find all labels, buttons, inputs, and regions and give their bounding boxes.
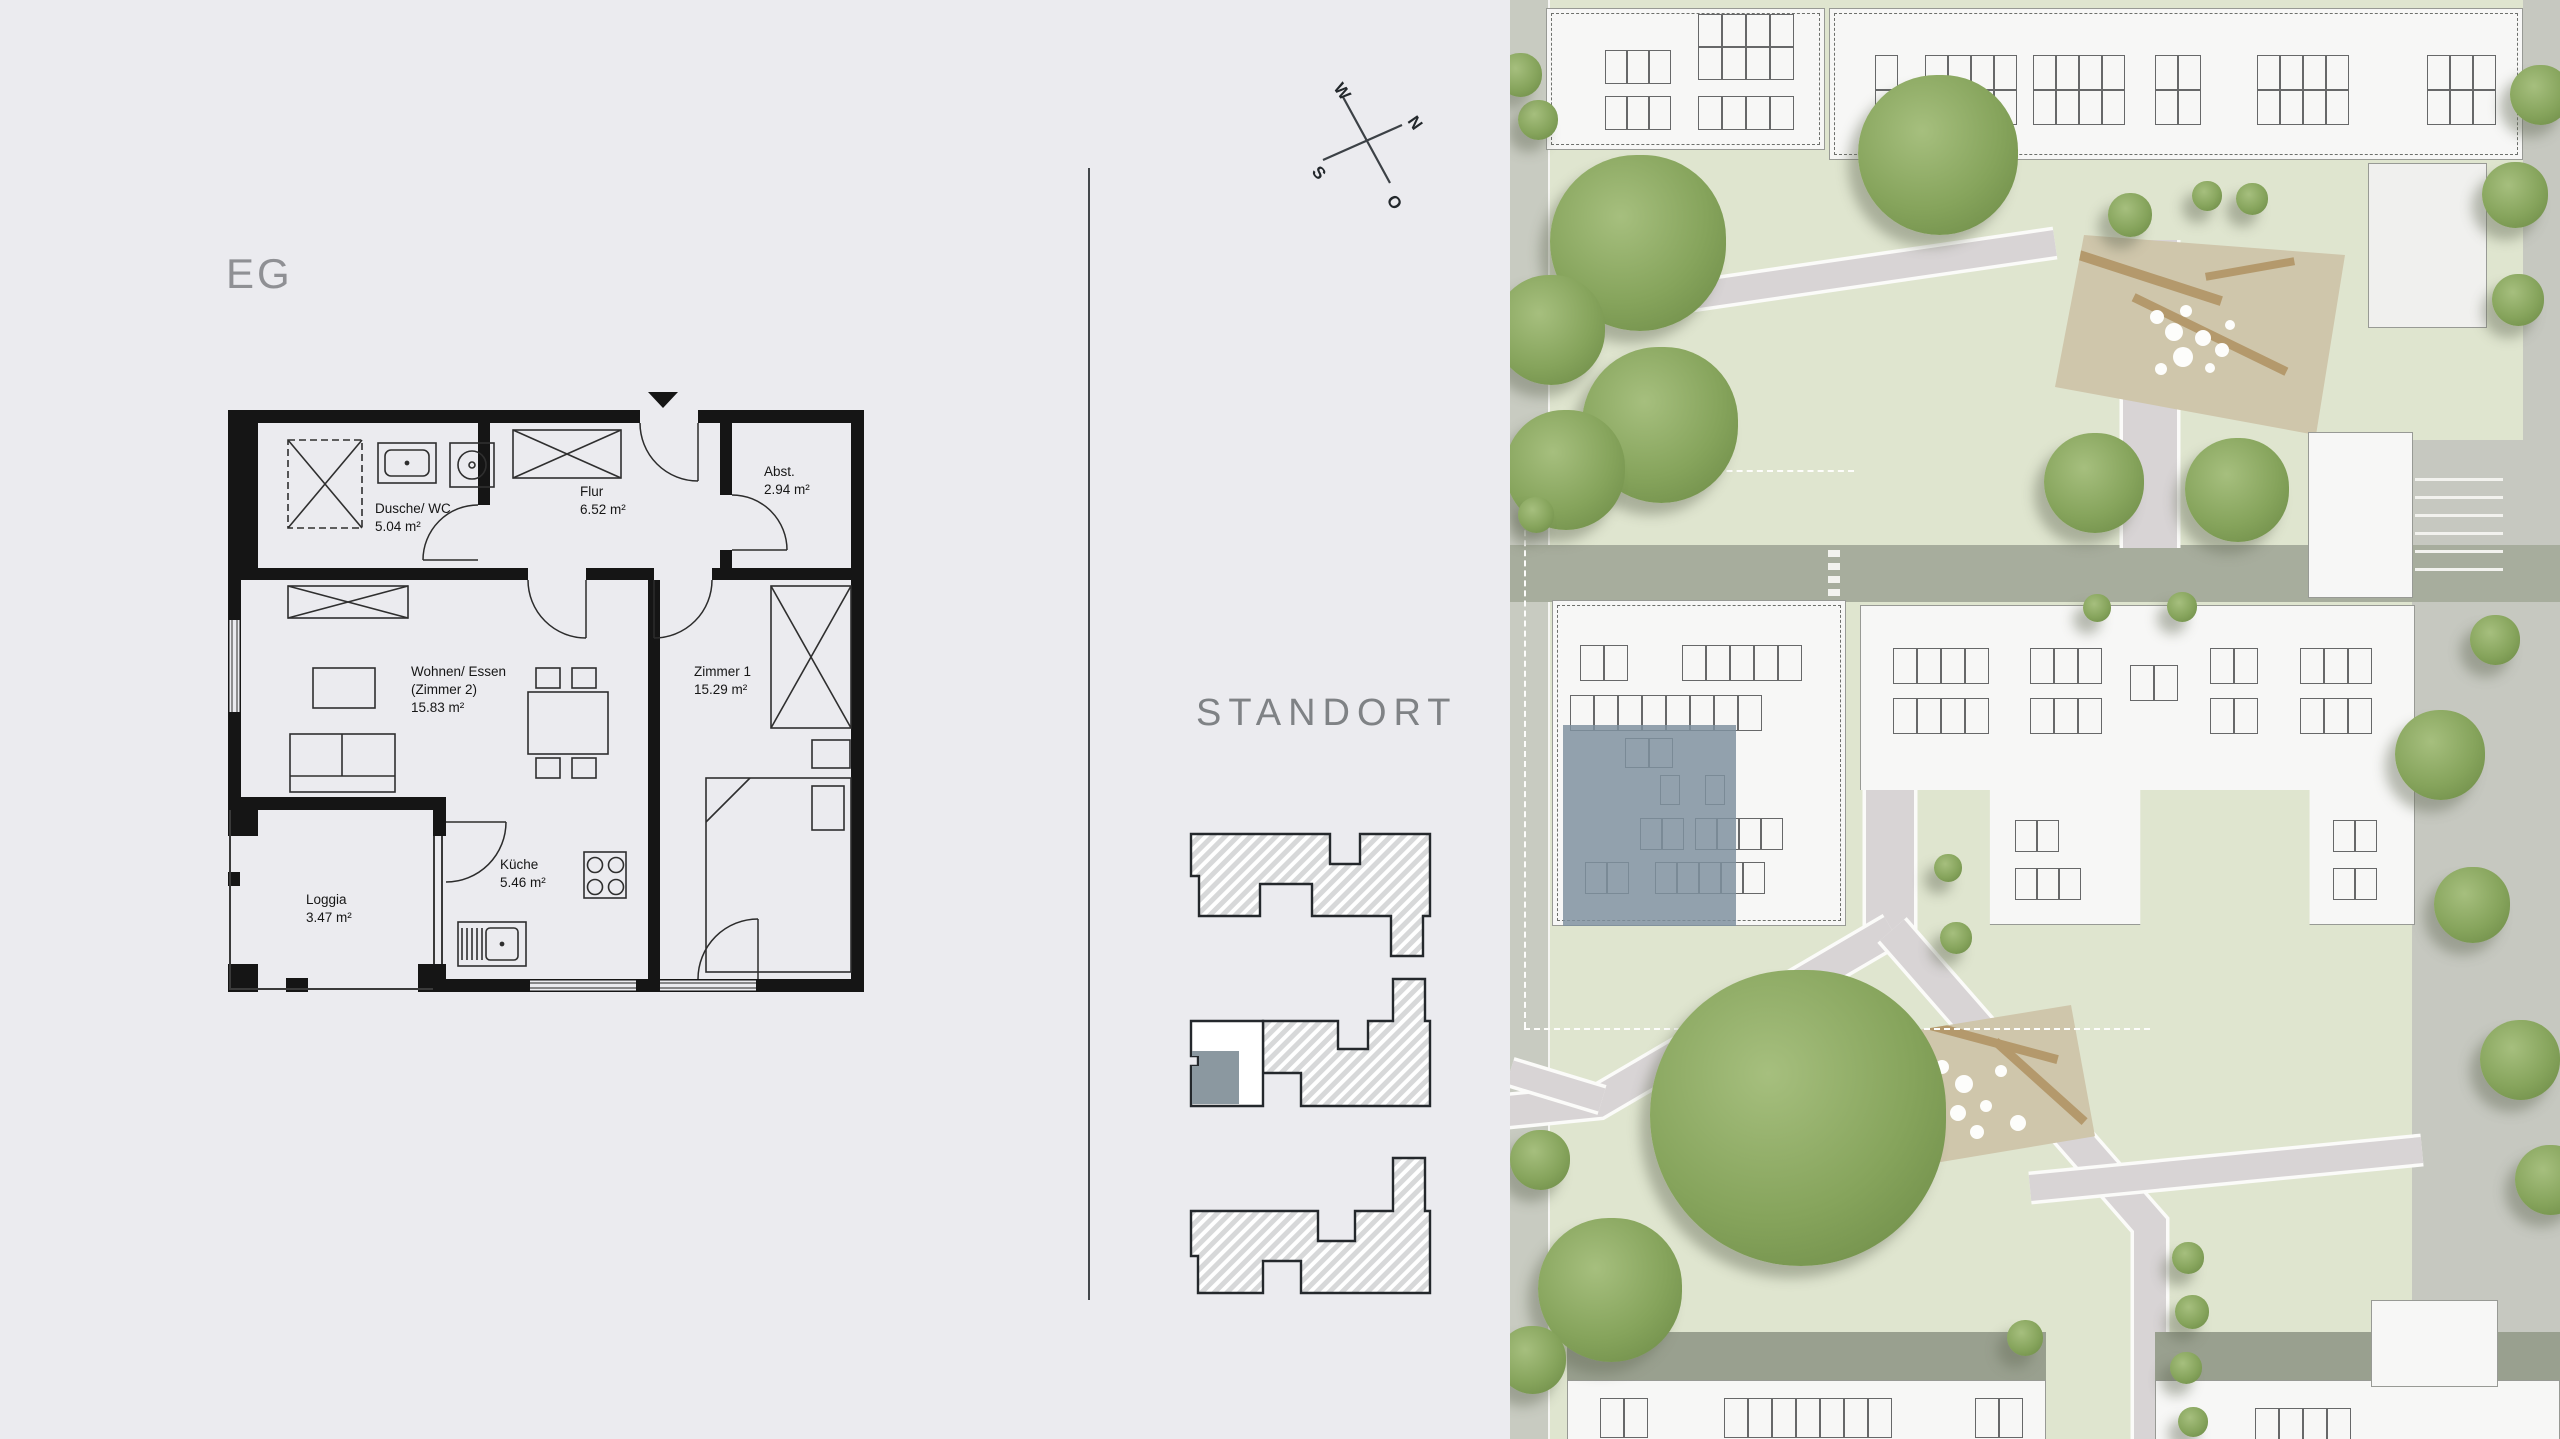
rooflight-cell: [1604, 645, 1628, 681]
rooflight-cell: [2257, 90, 2280, 125]
rooflight-cell: [2079, 90, 2102, 125]
play-beam: [2205, 257, 2295, 281]
rooflight-cell: [1994, 55, 2017, 90]
sofa-icon: [290, 734, 395, 792]
tree: [2044, 433, 2144, 533]
boundary-dashed-line: [1524, 470, 1526, 1028]
rooflight-cell: [2015, 868, 2037, 900]
tree: [2172, 1242, 2204, 1274]
building-shadow: [2155, 1332, 2560, 1380]
pebble: [2010, 1115, 2026, 1131]
wardrobe-icon: [513, 430, 621, 478]
pebble: [2195, 330, 2211, 346]
rooflight-cell: [1580, 645, 1604, 681]
tree: [1518, 497, 1554, 533]
rooflight-cell: [1875, 55, 1898, 90]
rooflight-cell: [2037, 868, 2059, 900]
tree: [2395, 710, 2485, 800]
compass-south-label: S: [1308, 162, 1330, 183]
rooflight-cell: [2210, 698, 2234, 734]
rooflight-cell: [2300, 648, 2324, 684]
rooflight-cell: [1965, 648, 1989, 684]
unit-highlight-overlay: [1563, 725, 1736, 926]
parking-stripe: [2415, 496, 2503, 499]
room-sublabel-wohnen: (Zimmer 2): [411, 682, 477, 697]
tree: [2434, 867, 2510, 943]
nightstand-icon: [812, 740, 850, 768]
tree: [1858, 75, 2018, 235]
rooflight-grid: [2300, 648, 2372, 684]
rooflight-cell: [2450, 55, 2473, 90]
parking-stripe: [2415, 550, 2503, 553]
rooflight-cell: [1698, 47, 1722, 80]
pebble: [1995, 1065, 2007, 1077]
tree: [2108, 193, 2152, 237]
tree: [2482, 162, 2548, 228]
rooflight-cell: [1778, 645, 1802, 681]
rooflight-cell: [1748, 1398, 1772, 1438]
tree: [2083, 594, 2111, 622]
rooflight-cell: [2303, 90, 2326, 125]
rooflight-cell: [1698, 96, 1722, 130]
rooflight-cell: [2427, 90, 2450, 125]
rooflight-cell: [1627, 50, 1649, 84]
pebble: [2180, 305, 2192, 317]
rooflight-grid: [2300, 698, 2372, 734]
building-bottom-right: [2155, 1380, 2560, 1439]
parking-stripe: [2415, 514, 2503, 517]
rooflight-cell: [2333, 820, 2355, 852]
rooflight-grid: [2030, 648, 2102, 684]
rooflight-grid: [1893, 698, 1989, 734]
rooflight-grid: [2427, 55, 2496, 125]
floor-plan: Dusche/ WC 5.04 m² Flur 6.52 m² Abst. 2.…: [228, 388, 868, 992]
rooflight-grid: [2015, 820, 2059, 852]
kitchen-sink-icon: [458, 922, 526, 966]
room-label-flur: Flur: [580, 484, 604, 499]
rooflight-cell: [1746, 14, 1770, 47]
rooflight-cell: [2033, 90, 2056, 125]
rooflight-cell: [2056, 55, 2079, 90]
rooflight-grid: [2333, 868, 2377, 900]
rooflight-grid: [2030, 698, 2102, 734]
rooflight-cell: [2257, 55, 2280, 90]
rooflight-cell: [2078, 648, 2102, 684]
tree: [2470, 615, 2520, 665]
play-beam: [2077, 250, 2223, 306]
rooflight-cell: [1605, 50, 1627, 84]
crosswalk-stripe: [1828, 563, 1840, 570]
rooflight-cell: [1999, 1398, 2023, 1438]
pebble: [2215, 343, 2229, 357]
crosswalk-stripe: [1828, 550, 1840, 557]
rooflight-cell: [1722, 96, 1746, 130]
sideboard-icon: [288, 586, 408, 618]
rooflight-cell: [1600, 1398, 1624, 1438]
compass-north-label: N: [1404, 112, 1427, 133]
rooflight-cell: [2155, 55, 2178, 90]
rooflight-cell: [2178, 55, 2201, 90]
rooflight-cell: [1917, 698, 1941, 734]
bed-icon: [706, 778, 851, 972]
rooflight-cell: [2473, 55, 2496, 90]
rooflight-cell: [1605, 96, 1627, 130]
rooflight-cell: [2154, 665, 2178, 701]
rooflight-cell: [2056, 90, 2079, 125]
rooflight-grid: [2130, 665, 2178, 701]
rooflight-cell: [2326, 90, 2349, 125]
rooflight-cell: [2030, 648, 2054, 684]
rooflight-cell: [2079, 55, 2102, 90]
rooflight-cell: [2303, 1408, 2327, 1439]
rooflight-cell: [2102, 55, 2125, 90]
rooflight-grid: [2257, 55, 2349, 125]
rooflight-cell: [2054, 648, 2078, 684]
rooflight-cell: [1649, 96, 1671, 130]
stove-icon: [584, 852, 626, 898]
crosswalk-stripe: [1828, 589, 1840, 596]
rooflight-cell: [2348, 648, 2372, 684]
rooflight-cell: [1770, 96, 1794, 130]
rooflight-grid: [2210, 698, 2258, 734]
rooflight-cell: [1739, 818, 1761, 850]
rooflight-cell: [1941, 698, 1965, 734]
tree: [2178, 1407, 2208, 1437]
rooflight-cell: [1820, 1398, 1844, 1438]
rooflight-grid: [2155, 55, 2201, 125]
rooflight-cell: [1754, 645, 1778, 681]
rooflight-cell: [1746, 47, 1770, 80]
tree: [2170, 1352, 2202, 1384]
room-label-dusche: Dusche/ WC: [375, 501, 451, 516]
rooflight-cell: [1746, 96, 1770, 130]
rooflight-grid: [2015, 868, 2081, 900]
standort-heading: STANDORT: [1196, 692, 1458, 735]
rooflight-cell: [1738, 695, 1762, 731]
tree: [1940, 922, 1972, 954]
tree: [2175, 1295, 2209, 1329]
rooflight-cell: [2355, 868, 2377, 900]
rooflight-cell: [1844, 1398, 1868, 1438]
room-label-abst: Abst.: [764, 464, 795, 479]
rooflight-grid: [1698, 96, 1794, 130]
rooflight-cell: [2473, 90, 2496, 125]
rooflight-grid: [1580, 645, 1628, 681]
rooflight-grid: [1893, 648, 1989, 684]
diagram-building-middle: [1263, 979, 1430, 1106]
tree: [2007, 1320, 2043, 1356]
rooflight-cell: [2037, 820, 2059, 852]
page: EG: [0, 0, 2560, 1439]
tree: [2167, 592, 2197, 622]
rooflight-cell: [1965, 698, 1989, 734]
pebble: [2165, 323, 2183, 341]
shower-icon: [288, 440, 362, 528]
room-area-abst: 2.94 m²: [764, 482, 810, 497]
pebble: [2155, 363, 2167, 375]
rooflight-cell: [2327, 1408, 2351, 1439]
diagram-building-bottom: [1191, 1158, 1430, 1293]
tree: [2236, 183, 2268, 215]
rooflight-cell: [2324, 648, 2348, 684]
coffee-table-icon: [313, 668, 375, 708]
rooflight-cell: [2015, 820, 2037, 852]
rooflight-cell: [2178, 90, 2201, 125]
room-area-loggia: 3.47 m²: [306, 910, 352, 925]
rooflight-cell: [2450, 90, 2473, 125]
furniture-symbols: [288, 430, 851, 972]
rooflight-cell: [1975, 1398, 1999, 1438]
sink-icon: [378, 443, 436, 483]
rooflight-cell: [2280, 90, 2303, 125]
rooflight-grid: [2255, 1408, 2351, 1439]
rooflight-cell: [2030, 698, 2054, 734]
pebble: [1955, 1075, 1973, 1093]
tree: [2480, 1020, 2560, 1100]
tree: [2185, 438, 2289, 542]
site-location-diagrams: [1188, 826, 1440, 1301]
tree: [2492, 274, 2544, 326]
pebble: [1950, 1105, 1966, 1121]
rooflight-cell: [1722, 14, 1746, 47]
building-tower-lower: [2308, 432, 2413, 598]
rooflight-cell: [2059, 868, 2081, 900]
room-area-kueche: 5.46 m²: [500, 875, 546, 890]
rooflight-cell: [1893, 698, 1917, 734]
rooflight-grid: [1605, 96, 1671, 130]
rooflight-cell: [2054, 698, 2078, 734]
parking-stripe: [2415, 532, 2503, 535]
rooflight-grid: [1724, 1398, 1892, 1438]
rooflight-cell: [2102, 90, 2125, 125]
rooflight-cell: [1770, 47, 1794, 80]
rooflight-cell: [1941, 648, 1965, 684]
room-area-dusche: 5.04 m²: [375, 519, 421, 534]
rooflight-cell: [2255, 1408, 2279, 1439]
rooflight-cell: [1722, 47, 1746, 80]
rooflight-grid: [1682, 645, 1802, 681]
site-plan: [1510, 0, 2560, 1439]
rooflight-cell: [1698, 14, 1722, 47]
rooflight-cell: [1796, 1398, 1820, 1438]
building-small-plain: [2371, 1300, 2498, 1387]
parking-stripe: [2415, 568, 2503, 571]
rooflight-grid: [2210, 648, 2258, 684]
compass-east-label: O: [1383, 191, 1406, 211]
room-area-flur: 6.52 m²: [580, 502, 626, 517]
rooflight-cell: [1770, 14, 1794, 47]
building-tower-upper: [2368, 163, 2487, 328]
room-label-loggia: Loggia: [306, 892, 347, 907]
room-area-wohnen: 15.83 m²: [411, 700, 465, 715]
wardrobe2-icon: [771, 586, 851, 728]
room-label-zimmer1: Zimmer 1: [694, 664, 751, 679]
tree: [1650, 970, 1946, 1266]
rooflight-grid: [1600, 1398, 1648, 1438]
rooflight-cell: [1627, 96, 1649, 130]
rooflight-cell: [2324, 698, 2348, 734]
rooflight-cell: [2279, 1408, 2303, 1439]
pebble: [2150, 310, 2164, 324]
room-label-kueche: Küche: [500, 857, 538, 872]
compass-icon: W N S O: [1293, 46, 1443, 211]
rooflight-grid: [1975, 1398, 2023, 1438]
rooflight-cell: [1893, 648, 1917, 684]
crosswalk-stripe: [1828, 576, 1840, 583]
diagram-building-top: [1191, 834, 1430, 956]
rooflight-grid: [1698, 14, 1794, 80]
rooflight-cell: [1730, 645, 1754, 681]
tree: [1518, 100, 1558, 140]
rooflight-cell: [1649, 50, 1671, 84]
rooflight-grid: [2333, 820, 2377, 852]
rooflight-cell: [2234, 698, 2258, 734]
pebble: [2225, 320, 2235, 330]
rooflight-cell: [1917, 648, 1941, 684]
pebble: [1970, 1125, 1984, 1139]
entrance-arrow-icon: [648, 392, 678, 408]
rooflight-cell: [1868, 1398, 1892, 1438]
rooflight-cell: [1682, 645, 1706, 681]
rooflight-grid: [1605, 50, 1671, 84]
rooflight-cell: [2078, 698, 2102, 734]
room-labels: Dusche/ WC 5.04 m² Flur 6.52 m² Abst. 2.…: [306, 464, 810, 925]
dining-set-icon: [528, 668, 608, 778]
rooflight-grid: [2033, 55, 2125, 125]
rooflight-cell: [2155, 90, 2178, 125]
floor-level-title: EG: [226, 250, 293, 298]
rooflight-cell: [2300, 698, 2324, 734]
pebble: [2205, 363, 2215, 373]
rooflight-cell: [2326, 55, 2349, 90]
section-divider: [1088, 168, 1090, 1300]
rooflight-cell: [1724, 1398, 1748, 1438]
rooflight-cell: [2427, 55, 2450, 90]
tree: [1934, 854, 1962, 882]
rooflight-cell: [1743, 862, 1765, 894]
rooflight-cell: [2033, 55, 2056, 90]
room-label-wohnen: Wohnen/ Essen: [411, 664, 506, 679]
rooflight-cell: [2130, 665, 2154, 701]
compass-west-label: W: [1330, 79, 1355, 104]
tree: [2192, 181, 2222, 211]
rooflight-cell: [2234, 648, 2258, 684]
rooflight-cell: [1706, 645, 1730, 681]
location-highlight-square: [1192, 1051, 1239, 1104]
rooflight-cell: [1772, 1398, 1796, 1438]
rooflight-cell: [2348, 698, 2372, 734]
room-area-zimmer1: 15.29 m²: [694, 682, 748, 697]
pebble: [1980, 1100, 1992, 1112]
rooflight-cell: [2303, 55, 2326, 90]
tree: [1510, 1130, 1570, 1190]
parking-stripe: [2415, 478, 2503, 481]
rooflight-cell: [1624, 1398, 1648, 1438]
rooflight-cell: [2210, 648, 2234, 684]
rooflight-cell: [2333, 868, 2355, 900]
rooflight-cell: [2280, 55, 2303, 90]
rooflight-cell: [2355, 820, 2377, 852]
pebble: [2173, 347, 2193, 367]
rooflight-cell: [1761, 818, 1783, 850]
